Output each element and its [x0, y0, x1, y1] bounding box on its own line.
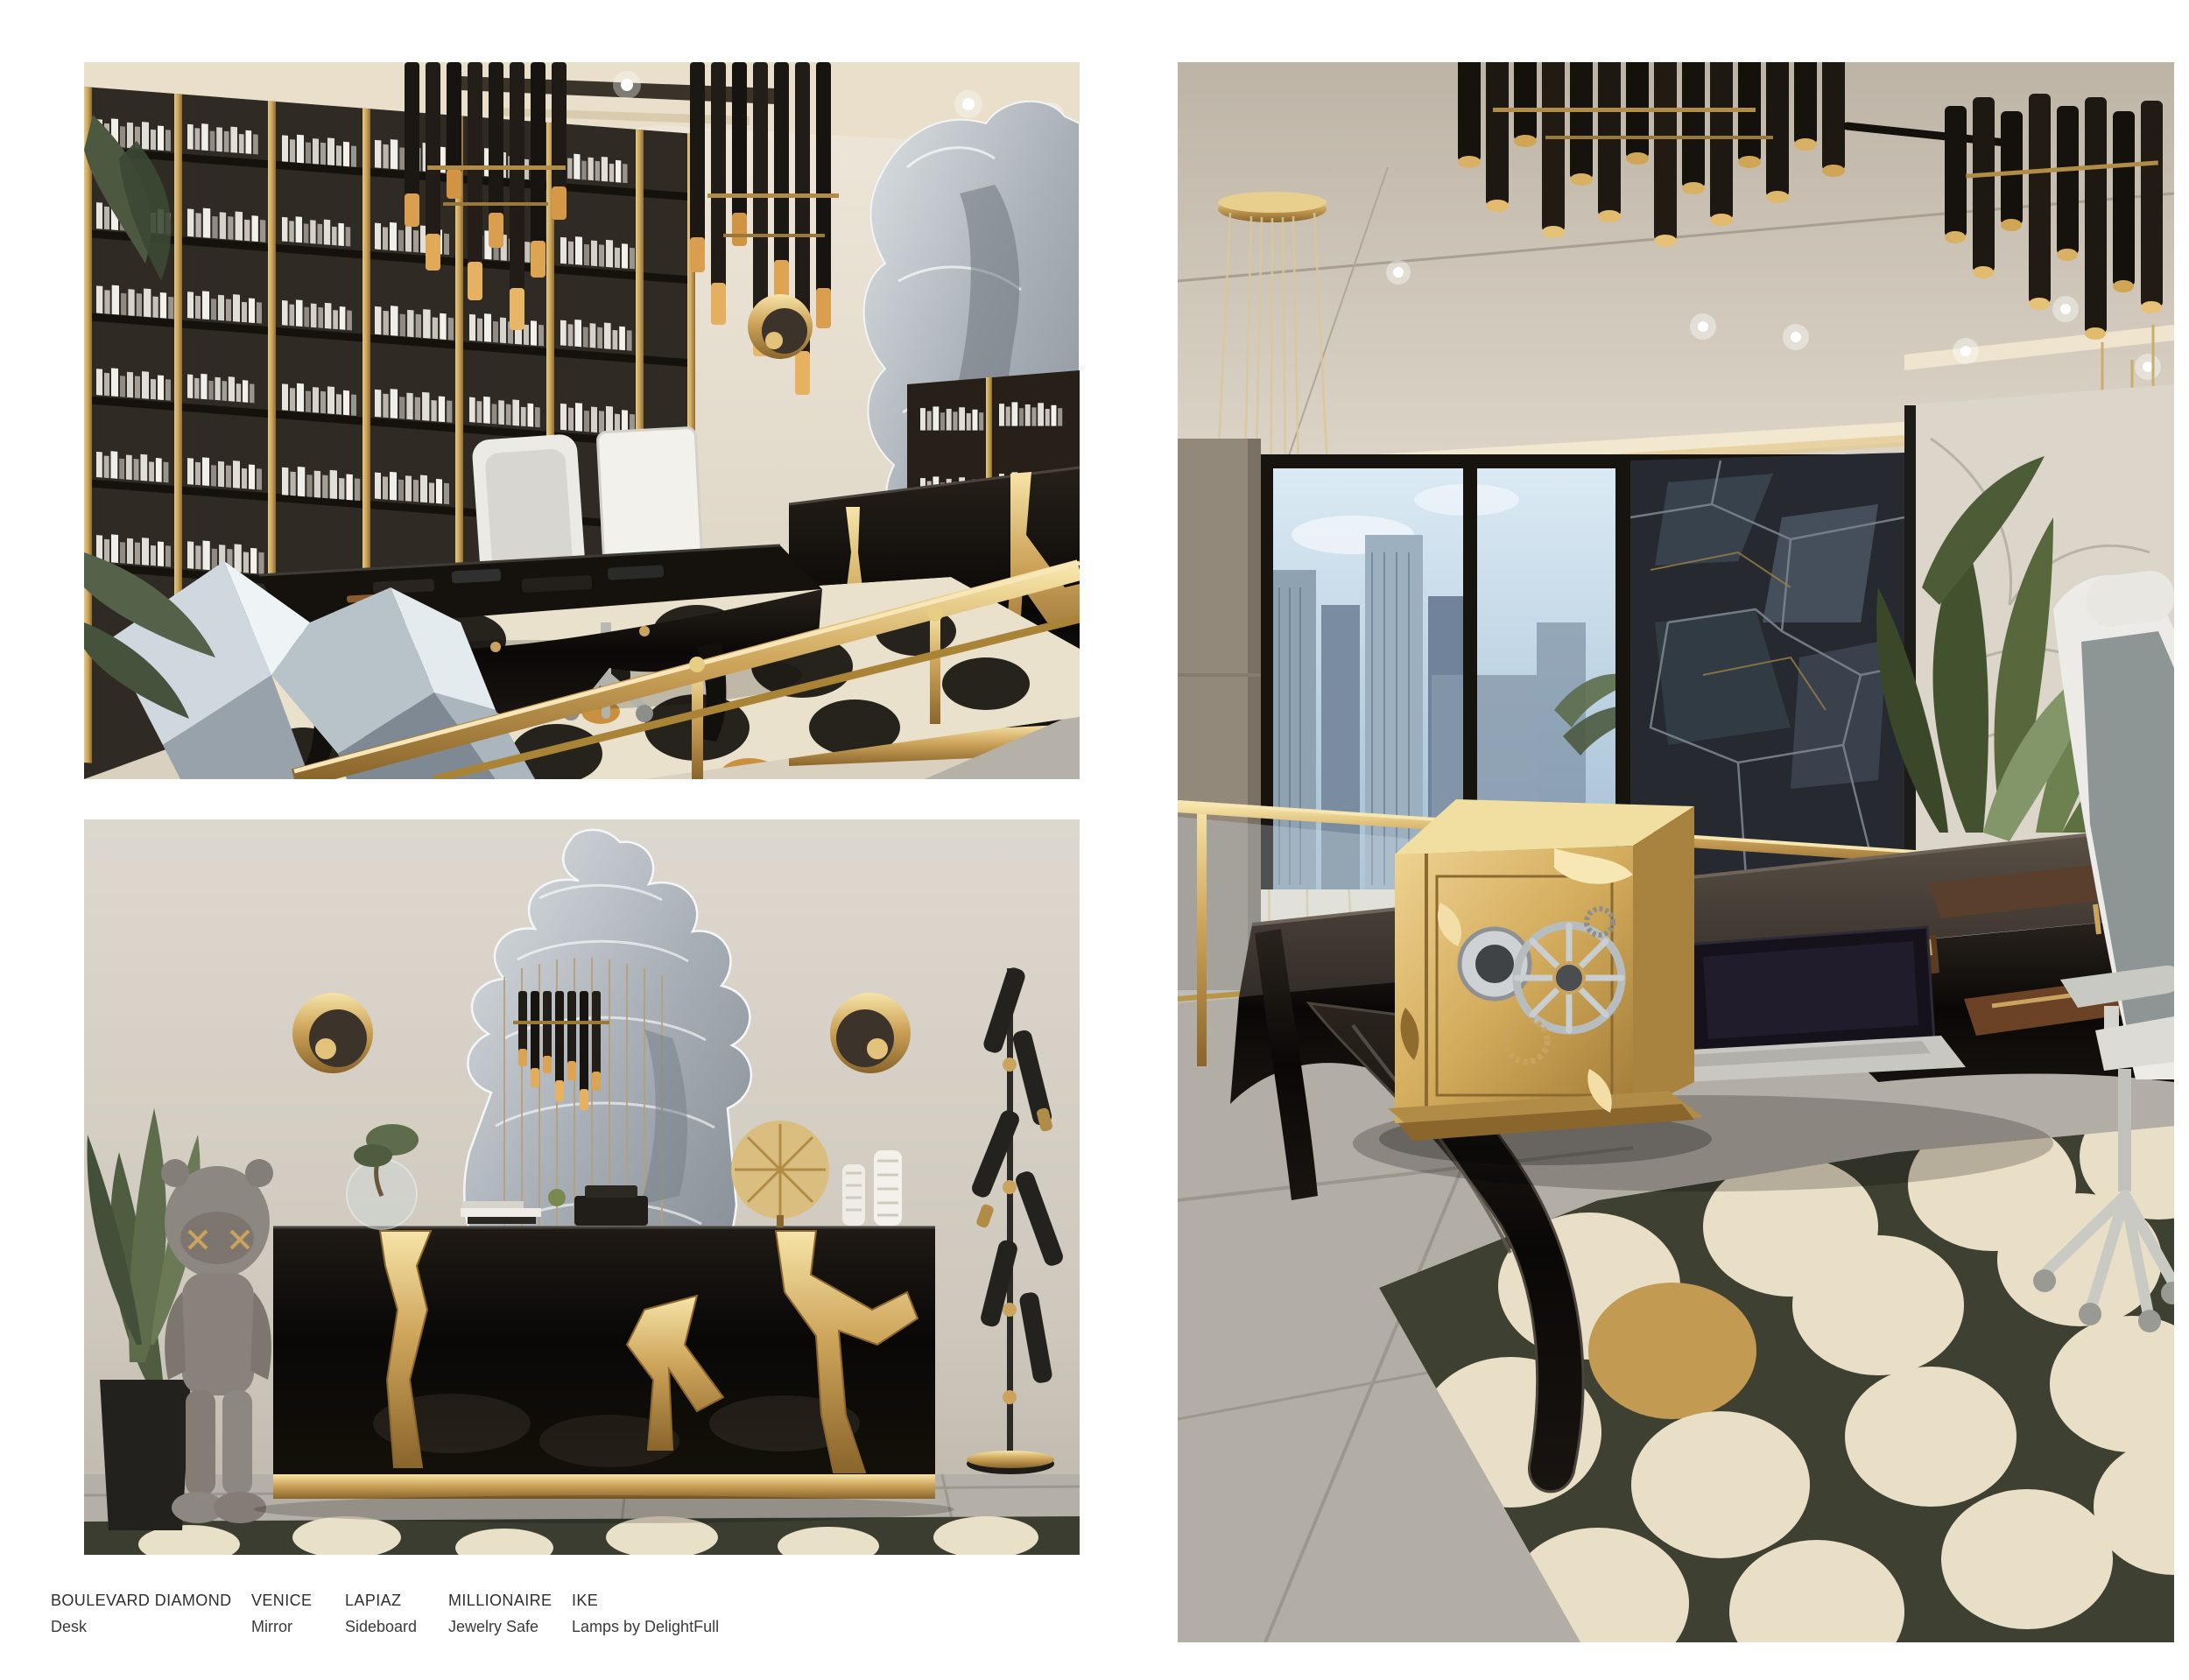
photo-millionaire-office — [1178, 62, 2174, 1642]
product-type: Mirror — [251, 1618, 312, 1636]
product-name: MILLIONAIRE — [448, 1592, 552, 1610]
caption-item: BOULEVARD DIAMOND Desk — [51, 1592, 232, 1636]
product-name: BOULEVARD DIAMOND — [51, 1592, 232, 1610]
lapiaz-sideboard-illustration — [84, 819, 1080, 1555]
catalog-page: { "page": {"type": "furniture-catalog-pa… — [0, 0, 2189, 1680]
laptop — [1651, 927, 1966, 1084]
product-type: Jewelry Safe — [448, 1618, 552, 1636]
gold-sconce-right — [830, 993, 911, 1073]
caption-item: IKE Lamps by DelightFull — [572, 1592, 719, 1636]
product-name: IKE — [572, 1592, 719, 1610]
gold-sconce-left — [292, 993, 373, 1073]
photo-office-bookshelf — [84, 62, 1080, 779]
gold-sconce — [748, 294, 813, 359]
millionaire-office-illustration — [1178, 62, 2174, 1642]
office-bookshelf-illustration — [84, 62, 1080, 779]
caption-list: BOULEVARD DIAMOND Desk VENICE Mirror LAP… — [0, 1592, 788, 1653]
product-type: Desk — [51, 1618, 232, 1636]
caption-item: MILLIONAIRE Jewelry Safe — [448, 1592, 552, 1636]
lapiaz-sideboard — [254, 1227, 954, 1523]
caption-item: VENICE Mirror — [251, 1592, 312, 1636]
photo-lapiaz-sideboard — [84, 819, 1080, 1555]
product-name: LAPIAZ — [345, 1592, 417, 1610]
product-name: VENICE — [251, 1592, 312, 1610]
caption-item: LAPIAZ Sideboard — [345, 1592, 417, 1636]
millionaire-safe — [1379, 799, 1712, 1165]
product-type: Lamps by DelightFull — [572, 1618, 719, 1636]
product-type: Sideboard — [345, 1618, 417, 1636]
